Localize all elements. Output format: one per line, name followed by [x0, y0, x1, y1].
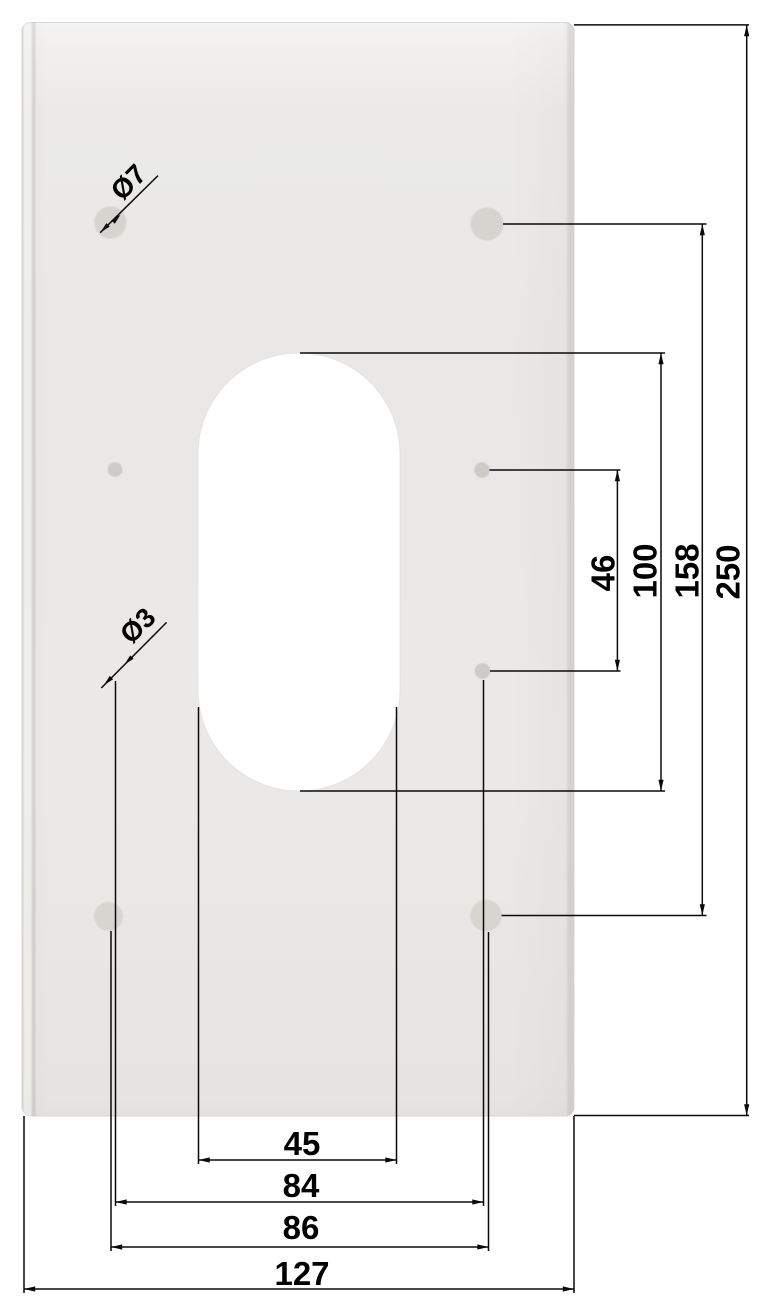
svg-text:127: 127 — [274, 1255, 329, 1292]
svg-text:86: 86 — [283, 1209, 320, 1246]
svg-text:250: 250 — [710, 544, 747, 599]
svg-text:46: 46 — [585, 555, 622, 592]
svg-text:158: 158 — [669, 543, 706, 598]
svg-text:84: 84 — [283, 1167, 320, 1204]
svg-text:100: 100 — [627, 543, 664, 598]
svg-text:45: 45 — [284, 1125, 321, 1162]
